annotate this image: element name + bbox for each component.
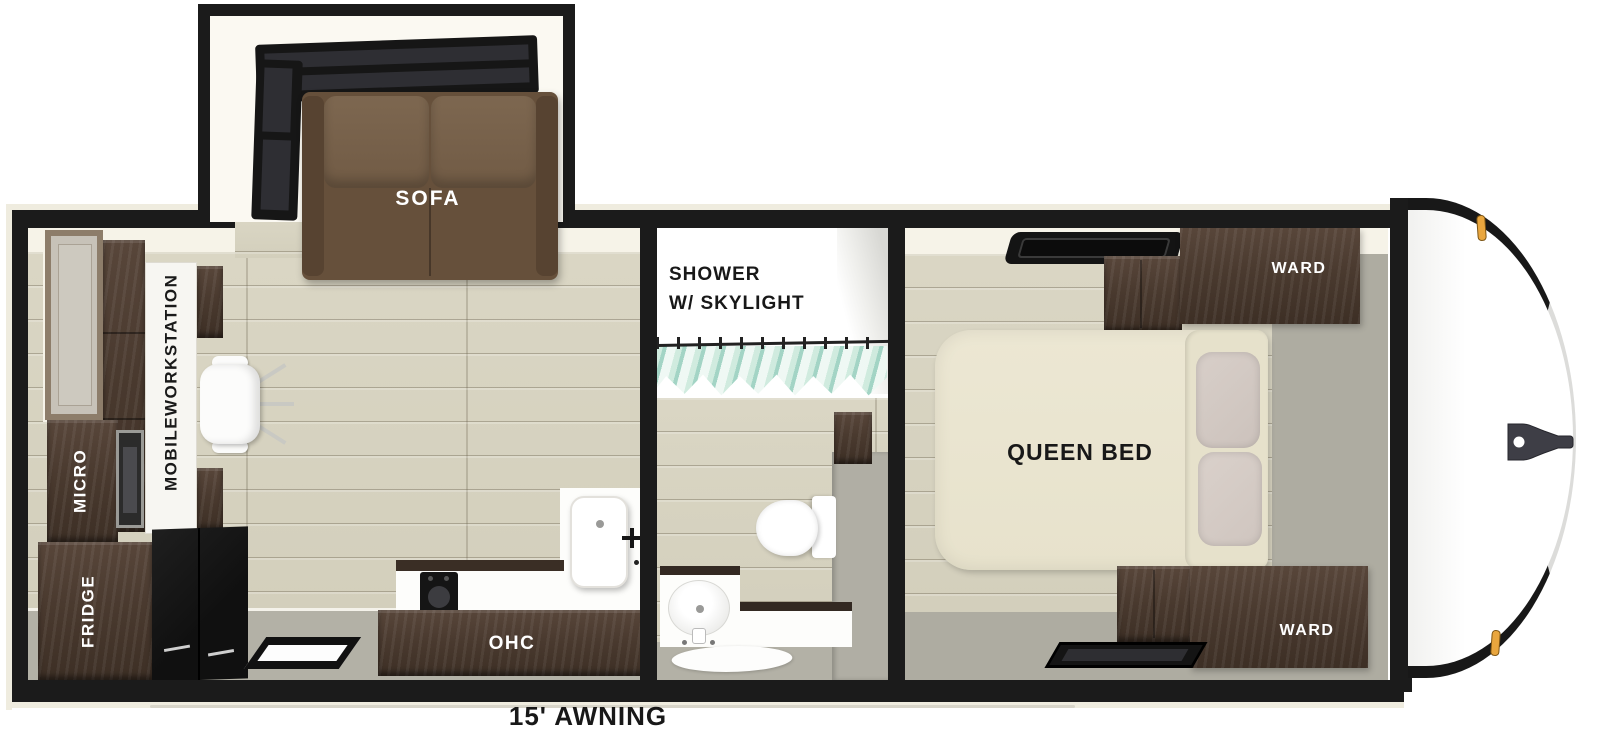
- chair-seat: [200, 364, 260, 444]
- pillow: [1196, 352, 1260, 448]
- queen-bed: QUEEN BED: [935, 330, 1268, 570]
- vanity-right: [740, 611, 852, 647]
- queen-bed-label: QUEEN BED: [970, 438, 1190, 466]
- roof-vent-inner: [1017, 238, 1171, 258]
- vanity-counter-edge: [740, 602, 852, 611]
- marker-light-front-bottom: [1490, 630, 1501, 657]
- window-pane: [262, 68, 292, 133]
- cabinet-handle: [164, 645, 190, 652]
- desk-overhead-cabinet-lower: [197, 468, 223, 530]
- wall-left: [12, 210, 28, 702]
- sofa-cushion: [431, 96, 536, 188]
- mobile-workstation-label: MOBILE WORKSTATION: [141, 292, 201, 472]
- living-wall-face-right: [558, 228, 640, 254]
- shower-label: SHOWER W/ SKYLIGHT: [669, 260, 839, 319]
- rv-floorplan: MOBILE WORKSTATION MICRO FRIDGE: [0, 0, 1600, 731]
- cabinet-door-seam: [198, 528, 200, 680]
- sofa-armrest: [302, 96, 324, 276]
- cooktop-knob: [428, 576, 433, 581]
- chair-leg: [256, 363, 287, 384]
- wall-bath-left: [640, 222, 657, 680]
- vanity-knob: [710, 640, 715, 645]
- ohc-label: OHC: [378, 624, 646, 664]
- desk-chair: [196, 354, 292, 456]
- wall-top-right: [558, 210, 1404, 228]
- ohc-cabinet: OHC: [378, 610, 646, 676]
- wall-bottom: [12, 680, 1404, 702]
- fridge-label: FRIDGE: [70, 556, 106, 666]
- cabinet-door-seam: [1140, 260, 1142, 328]
- slideout-side-window: [251, 59, 303, 221]
- desk-overhead-cabinet-upper: [197, 266, 223, 338]
- nightstand-overhead-bottom: [1117, 566, 1193, 642]
- curtain-rings: [656, 337, 886, 349]
- vanity-counter-edge: [660, 566, 740, 575]
- cabinet-handle: [208, 649, 234, 656]
- awning-label: 15' AWNING: [468, 701, 708, 731]
- cooktop-burner: [428, 586, 450, 608]
- vanity-faucet: [692, 628, 706, 644]
- sink-sprayer-dot: [634, 560, 639, 565]
- ward-cabinet-top: WARD: [1180, 228, 1360, 324]
- ward-bottom-label: WARD: [1252, 618, 1362, 644]
- bedroom-window: [1044, 642, 1207, 668]
- window-pane: [264, 44, 528, 68]
- microwave: [116, 430, 144, 528]
- sofa: SOFA: [302, 92, 558, 280]
- chair-leg: [256, 423, 287, 444]
- nightstand-overhead-top: [1104, 256, 1182, 332]
- pantry-shelf-line: [103, 332, 145, 334]
- entertainment-cabinet: [152, 526, 248, 681]
- kitchen-sink: [570, 496, 628, 588]
- vanity-drain: [696, 605, 704, 613]
- vanity-knob: [682, 640, 687, 645]
- sofa-label: SOFA: [358, 186, 498, 212]
- rear-door-panel: [58, 244, 92, 406]
- sink-faucet-stem: [630, 528, 634, 548]
- hitch-coupler: [1504, 414, 1576, 470]
- window-pane: [265, 67, 529, 91]
- marker-light-front-top: [1476, 215, 1487, 242]
- sofa-armrest: [536, 96, 558, 276]
- bedroom-window-pane: [1062, 649, 1189, 661]
- kitchen-counter-edge: [396, 560, 564, 571]
- chair-leg: [258, 402, 294, 406]
- pillow: [1198, 452, 1262, 546]
- cabinet-door-seam: [1153, 570, 1155, 638]
- ward-top-label: WARD: [1244, 256, 1354, 282]
- sink-drain: [596, 520, 604, 528]
- sofa-cushion: [324, 96, 429, 188]
- ward-cabinet-bottom: WARD: [1190, 566, 1368, 668]
- toilet-bowl: [756, 500, 818, 556]
- microwave-window: [123, 447, 137, 513]
- cooktop: [420, 572, 458, 614]
- wall-bath-right: [888, 222, 905, 680]
- cooktop-knob: [444, 576, 449, 581]
- micro-label: MICRO: [62, 438, 98, 524]
- bathroom-overhead-cabinet: [834, 412, 872, 464]
- window-pane: [261, 140, 291, 211]
